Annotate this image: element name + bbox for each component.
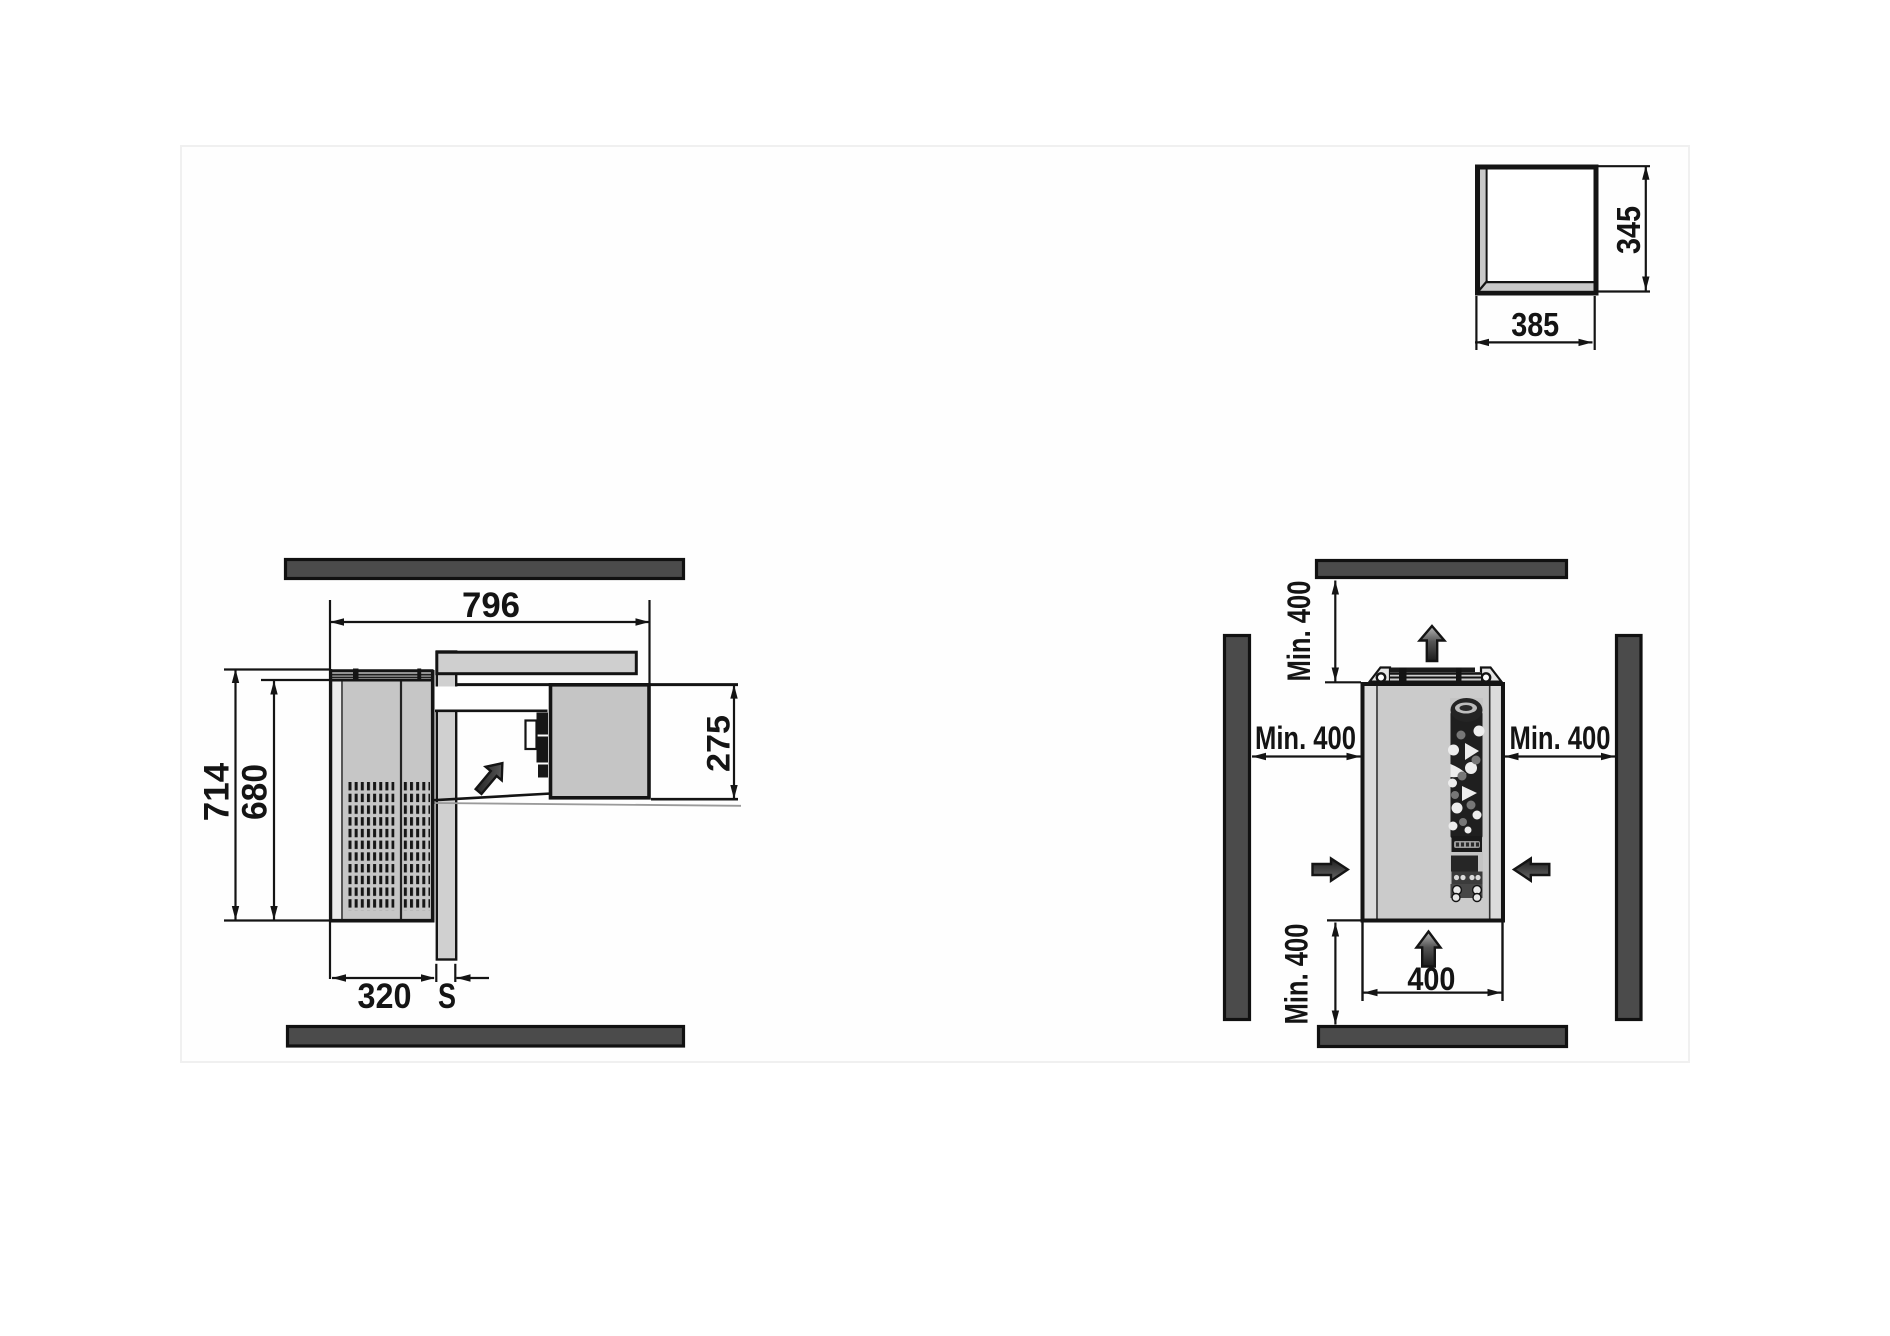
svg-text:320: 320 bbox=[358, 977, 412, 1016]
svg-text:S: S bbox=[438, 977, 456, 1016]
svg-text:345: 345 bbox=[1610, 206, 1647, 254]
svg-text:Min. 400: Min. 400 bbox=[1279, 924, 1315, 1025]
svg-text:275: 275 bbox=[701, 715, 737, 772]
svg-text:796: 796 bbox=[462, 586, 520, 625]
svg-text:385: 385 bbox=[1511, 306, 1559, 343]
svg-text:Min. 400: Min. 400 bbox=[1255, 720, 1356, 756]
svg-text:680: 680 bbox=[236, 764, 275, 820]
svg-text:714: 714 bbox=[198, 762, 237, 821]
svg-text:Min. 400: Min. 400 bbox=[1510, 720, 1611, 756]
svg-text:Min. 400: Min. 400 bbox=[1281, 581, 1317, 682]
